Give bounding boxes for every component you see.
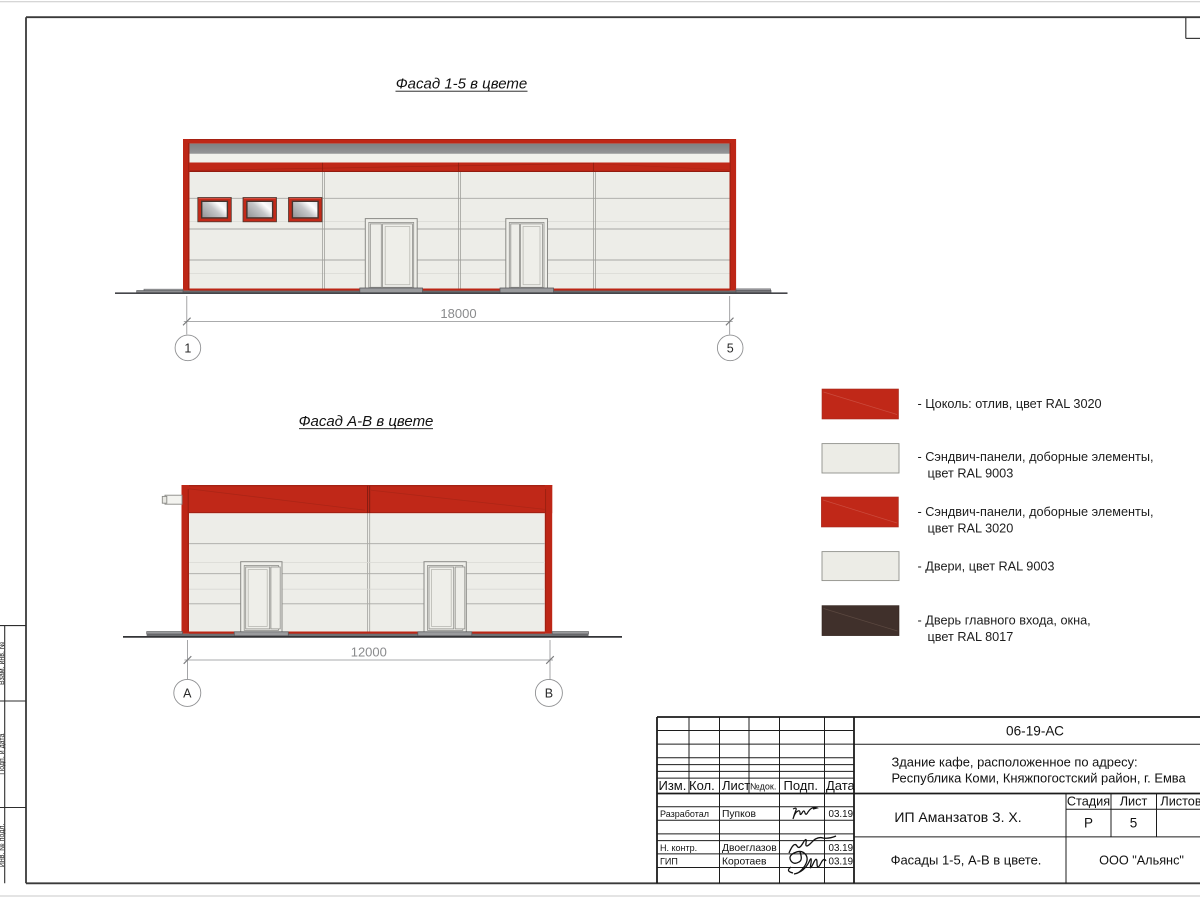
svg-text:Изм.: Изм. [659,778,687,793]
svg-text:Разработал: Разработал [660,809,709,819]
svg-text:Пупков: Пупков [722,809,756,820]
svg-text:5: 5 [727,341,734,355]
svg-text:Лист: Лист [1120,795,1148,809]
svg-text:Листов: Листов [1160,795,1200,809]
svg-text:ИП Аманзатов З. Х.: ИП Аманзатов З. Х. [894,809,1021,825]
svg-text:03.19: 03.19 [829,857,854,868]
svg-text:- Двери, цвет RAL 9003: - Двери, цвет RAL 9003 [918,560,1055,574]
svg-text:Фасад 1-5 в цвете: Фасад 1-5 в цвете [396,76,528,93]
svg-text:- Дверь главного входа, окна,: - Дверь главного входа, окна, [918,614,1091,628]
svg-text:ГИП: ГИП [660,856,678,866]
svg-text:12000: 12000 [351,644,387,659]
svg-text:- Цоколь: отлив, цвет RAL 3020: - Цоколь: отлив, цвет RAL 3020 [918,397,1102,411]
svg-text:Инв. № подл.: Инв. № подл. [0,824,6,868]
svg-text:Кол.: Кол. [689,778,715,793]
svg-text:Подп.: Подп. [784,778,819,793]
svg-text:Фасады 1-5, А-В в цвете.: Фасады 1-5, А-В в цвете. [891,853,1042,868]
svg-text:№док.: №док. [750,782,776,792]
svg-text:А: А [183,686,192,700]
svg-text:ООО "Альянс": ООО "Альянс" [1099,854,1184,868]
svg-text:цвет RAL 9003: цвет RAL 9003 [928,467,1014,481]
svg-text:18000: 18000 [440,306,476,321]
svg-text:Двоеглазов: Двоеглазов [722,843,777,854]
svg-text:Коротаев: Коротаев [722,857,767,868]
svg-text:03.19: 03.19 [829,809,854,820]
svg-text:- Сэндвич-панели, доборные эле: - Сэндвич-панели, доборные элементы, [918,450,1154,464]
svg-text:Р: Р [1084,816,1093,831]
svg-text:В: В [545,686,553,700]
svg-text:Стадия: Стадия [1067,795,1110,809]
svg-text:Взам. инв. №: Взам. инв. № [0,642,6,685]
svg-text:Лист: Лист [722,778,750,793]
svg-text:Дата: Дата [826,778,856,793]
svg-text:5: 5 [1130,816,1138,831]
svg-text:Н. контр.: Н. контр. [660,843,697,853]
svg-text:03.19: 03.19 [829,843,854,854]
svg-text:1: 1 [184,341,191,355]
svg-text:Подп. и дата: Подп. и дата [0,733,6,774]
svg-text:цвет RAL 3020: цвет RAL 3020 [928,522,1014,536]
svg-text:цвет RAL 8017: цвет RAL 8017 [928,630,1014,644]
svg-text:Фасад А-В в цвете: Фасад А-В в цвете [299,413,434,430]
svg-text:Здание кафе, расположенное по: Здание кафе, расположенное по адресу: [892,755,1138,770]
svg-text:06-19-АС: 06-19-АС [1006,724,1064,739]
svg-text:- Сэндвич-панели, доборные эле: - Сэндвич-панели, доборные элементы, [918,505,1154,519]
svg-text:Республика Коми, Княжпогостски: Республика Коми, Княжпогостский район, г… [892,771,1187,786]
